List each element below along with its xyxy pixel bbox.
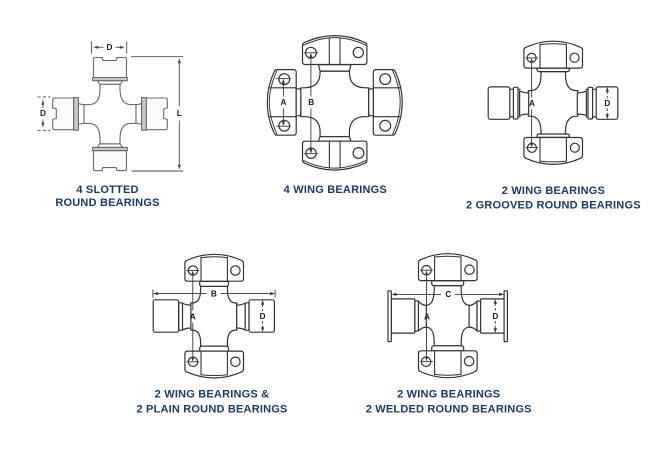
svg-text:D: D: [492, 312, 498, 321]
svg-text:2 WING BEARINGS: 2 WING BEARINGS: [397, 389, 500, 401]
svg-text:B: B: [308, 98, 314, 107]
svg-text:A: A: [190, 312, 196, 321]
svg-text:4 WING BEARINGS: 4 WING BEARINGS: [284, 184, 387, 196]
svg-text:A: A: [280, 98, 286, 107]
svg-text:ROUND BEARINGS: ROUND BEARINGS: [55, 197, 159, 209]
svg-text:D: D: [40, 109, 46, 118]
svg-text:4 SLOTTED: 4 SLOTTED: [76, 184, 138, 196]
svg-text:C: C: [445, 290, 451, 299]
svg-text:B: B: [211, 289, 217, 298]
svg-text:D: D: [260, 312, 266, 321]
svg-text:2 WELDED ROUND BEARINGS: 2 WELDED ROUND BEARINGS: [366, 404, 532, 416]
svg-text:2 WING BEARINGS &: 2 WING BEARINGS &: [155, 388, 270, 400]
svg-text:D: D: [604, 99, 610, 108]
svg-text:L: L: [177, 109, 182, 118]
svg-text:A: A: [424, 312, 430, 321]
svg-text:2 GROOVED ROUND BEARINGS: 2 GROOVED ROUND BEARINGS: [466, 200, 641, 212]
svg-text:2 WING BEARINGS: 2 WING BEARINGS: [502, 185, 605, 197]
svg-text:2 PLAIN ROUND BEARINGS: 2 PLAIN ROUND BEARINGS: [136, 403, 287, 415]
svg-text:A: A: [529, 99, 535, 108]
svg-text:D: D: [107, 43, 113, 52]
